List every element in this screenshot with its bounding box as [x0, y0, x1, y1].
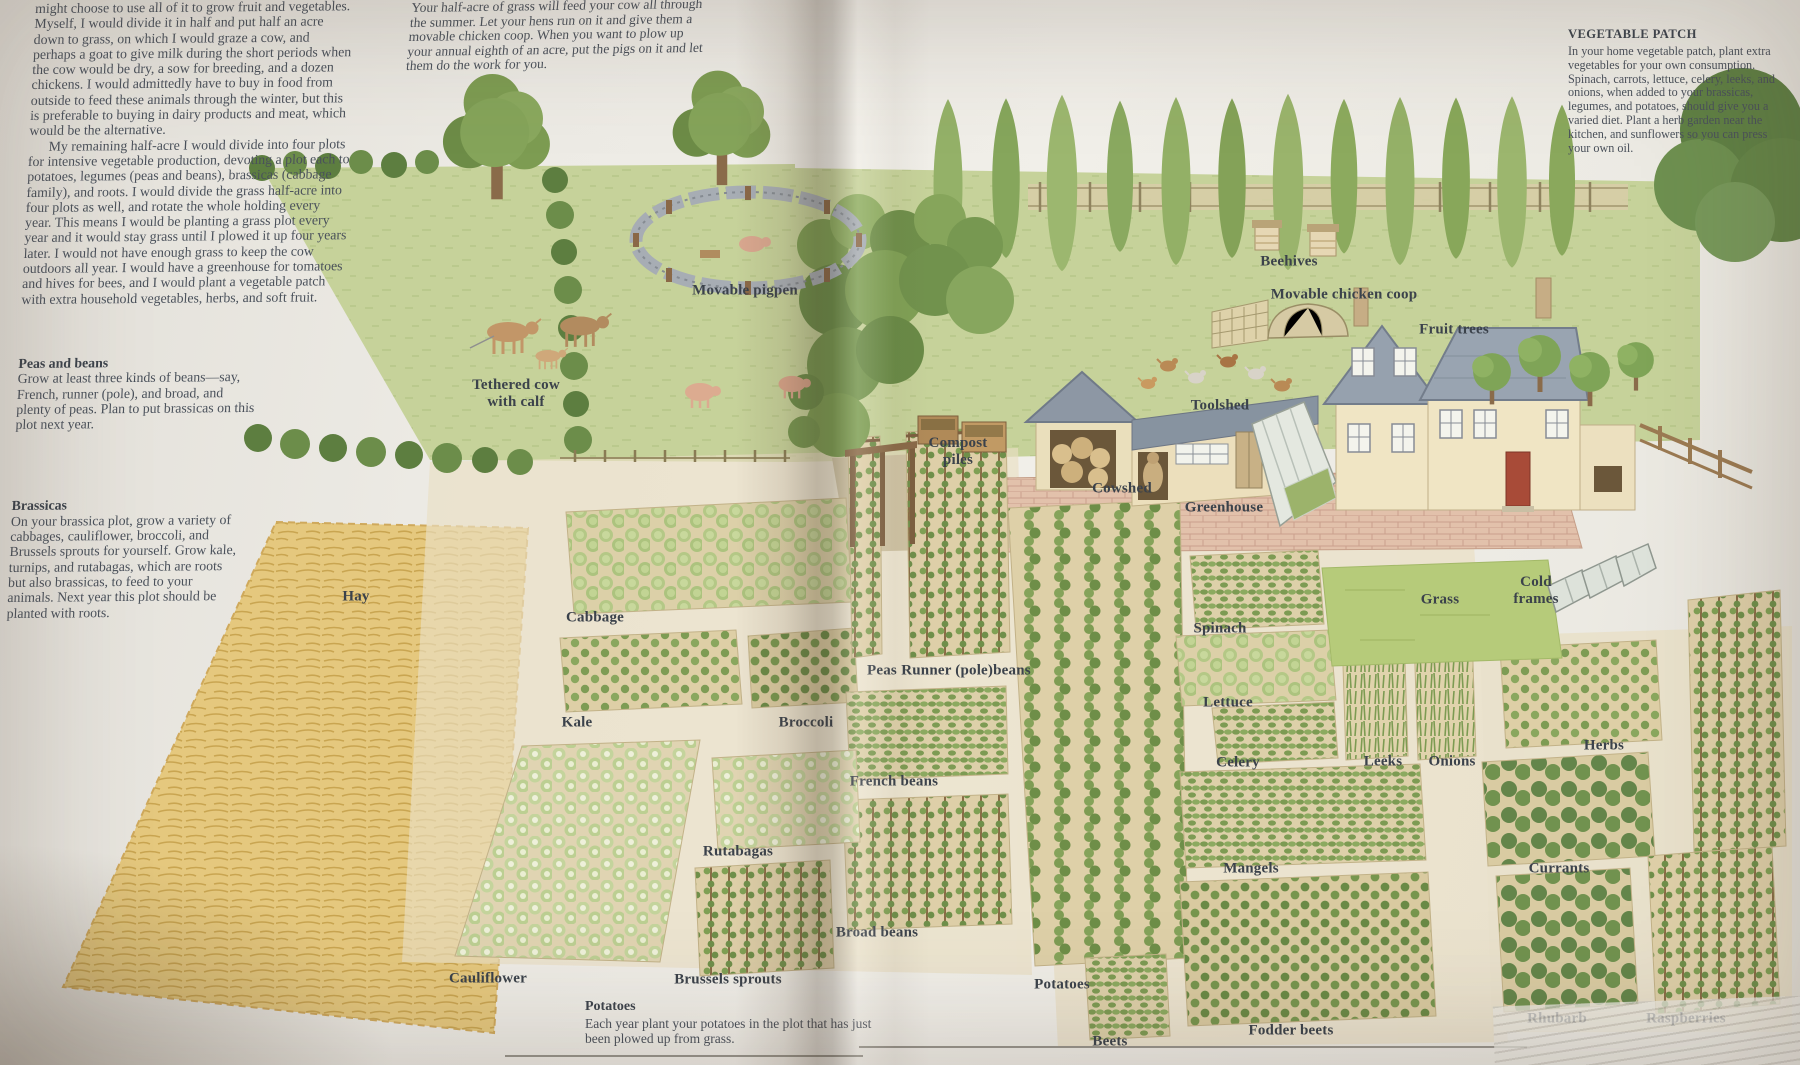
bed-mangels [1180, 764, 1426, 868]
top-middle-paragraph: Your half-acre of grass will feed your c… [405, 0, 712, 74]
bed-broad-beans [843, 794, 1012, 930]
bed-raspberries [1648, 846, 1780, 1014]
label-potatoes: Potatoes [1034, 977, 1090, 994]
intro-paragraph-2: My remaining half-acre I would divide in… [21, 136, 351, 307]
potatoes-caption-body: Each year plant your potatoes in the plo… [585, 1016, 875, 1046]
label-cauliflower: Cauliflower [449, 971, 527, 988]
label-leeks: Leeks [1364, 754, 1403, 771]
label-lettuce: Lettuce [1203, 695, 1253, 712]
bed-rhubarb [1496, 868, 1638, 1012]
label-broad-beans: Broad beans [836, 925, 918, 942]
label-compost-piles: Compost piles [920, 435, 996, 469]
label-greenhouse: Greenhouse [1185, 500, 1263, 517]
label-broccoli: Broccoli [779, 715, 834, 732]
bed-kale [560, 630, 742, 712]
label-cowshed: Cowshed [1092, 481, 1152, 498]
intro-paragraph-1: might choose to use all of it to grow fr… [29, 0, 358, 139]
label-mangels: Mangels [1223, 861, 1279, 878]
label-movable-chicken-coop: Movable chicken coop [1271, 287, 1418, 304]
bed-beets [1085, 954, 1170, 1040]
bed-currants [1482, 752, 1655, 866]
label-fruit-trees: Fruit trees [1419, 322, 1489, 339]
bed-rutabagas [712, 750, 860, 850]
label-kale: Kale [562, 715, 593, 732]
label-beehives: Beehives [1260, 254, 1317, 271]
bed-broccoli [748, 628, 858, 708]
label-cabbage: Cabbage [566, 610, 624, 627]
label-hay: Hay [342, 589, 369, 606]
label-cold-frames: Cold frames [1505, 574, 1567, 608]
vegetable-patch-sidebar: VEGETABLE PATCH In your home vegetable p… [1568, 27, 1786, 155]
brassicas-body: On your brassica plot, grow a variety of… [6, 512, 243, 621]
potatoes-caption-heading: Potatoes [585, 999, 875, 1015]
label-brussels-sprouts: Brussels sprouts [674, 972, 782, 989]
label-grass: Grass [1421, 592, 1460, 609]
left-page-rule [505, 1055, 863, 1057]
label-rutabagas: Rutabagas [703, 844, 773, 861]
label-celery: Celery [1216, 755, 1260, 772]
label-rhubarb: Rhubarb [1527, 1011, 1587, 1028]
label-beets: Beets [1092, 1034, 1127, 1051]
peas-beans-body: Grow at least three kinds of beans—say, … [15, 369, 256, 432]
label-currants: Currants [1529, 861, 1590, 878]
book-spread-photo: good, well-drained land, you might choos… [0, 0, 1800, 1065]
bed-fodder-beets [1180, 872, 1436, 1026]
peas-beans-section: Peas and beans Grow at least three kinds… [15, 354, 257, 433]
label-peas: Peas [867, 663, 897, 680]
label-spinach: Spinach [1193, 621, 1246, 638]
label-raspberries: Raspberries [1646, 1011, 1726, 1028]
vegetable-patch-body: In your home vegetable patch, plant extr… [1568, 45, 1786, 155]
bed-brussels-sprouts [695, 860, 834, 976]
label-movable-pigpen: Movable pigpen [692, 283, 798, 300]
vegetable-patch-heading: VEGETABLE PATCH [1568, 27, 1786, 42]
label-herbs: Herbs [1584, 738, 1624, 755]
label-fodder-beets: Fodder beets [1248, 1023, 1333, 1040]
right-page-rule [859, 1046, 1527, 1048]
label-french-beans: French beans [850, 774, 938, 791]
brassicas-section: Brassicas On your brassica plot, grow a … [6, 496, 244, 620]
bed-french-beans [846, 686, 1008, 780]
potatoes-caption: Potatoes Each year plant your potatoes i… [585, 999, 875, 1046]
bed-cabbage [566, 498, 852, 614]
label-onions: Onions [1428, 754, 1475, 771]
bed-spinach [1190, 550, 1324, 630]
label-runner-beans: Runner (pole)beans [901, 663, 1031, 680]
label-toolshed: Toolshed [1191, 398, 1250, 415]
left-text-column: good, well-drained land, you might choos… [6, 0, 358, 621]
bed-lettuce [1176, 630, 1336, 706]
label-tethered-cow: Tethered cow with calf [462, 377, 570, 411]
bed-edge-beans [1688, 590, 1786, 852]
bed-potatoes [1008, 500, 1188, 966]
